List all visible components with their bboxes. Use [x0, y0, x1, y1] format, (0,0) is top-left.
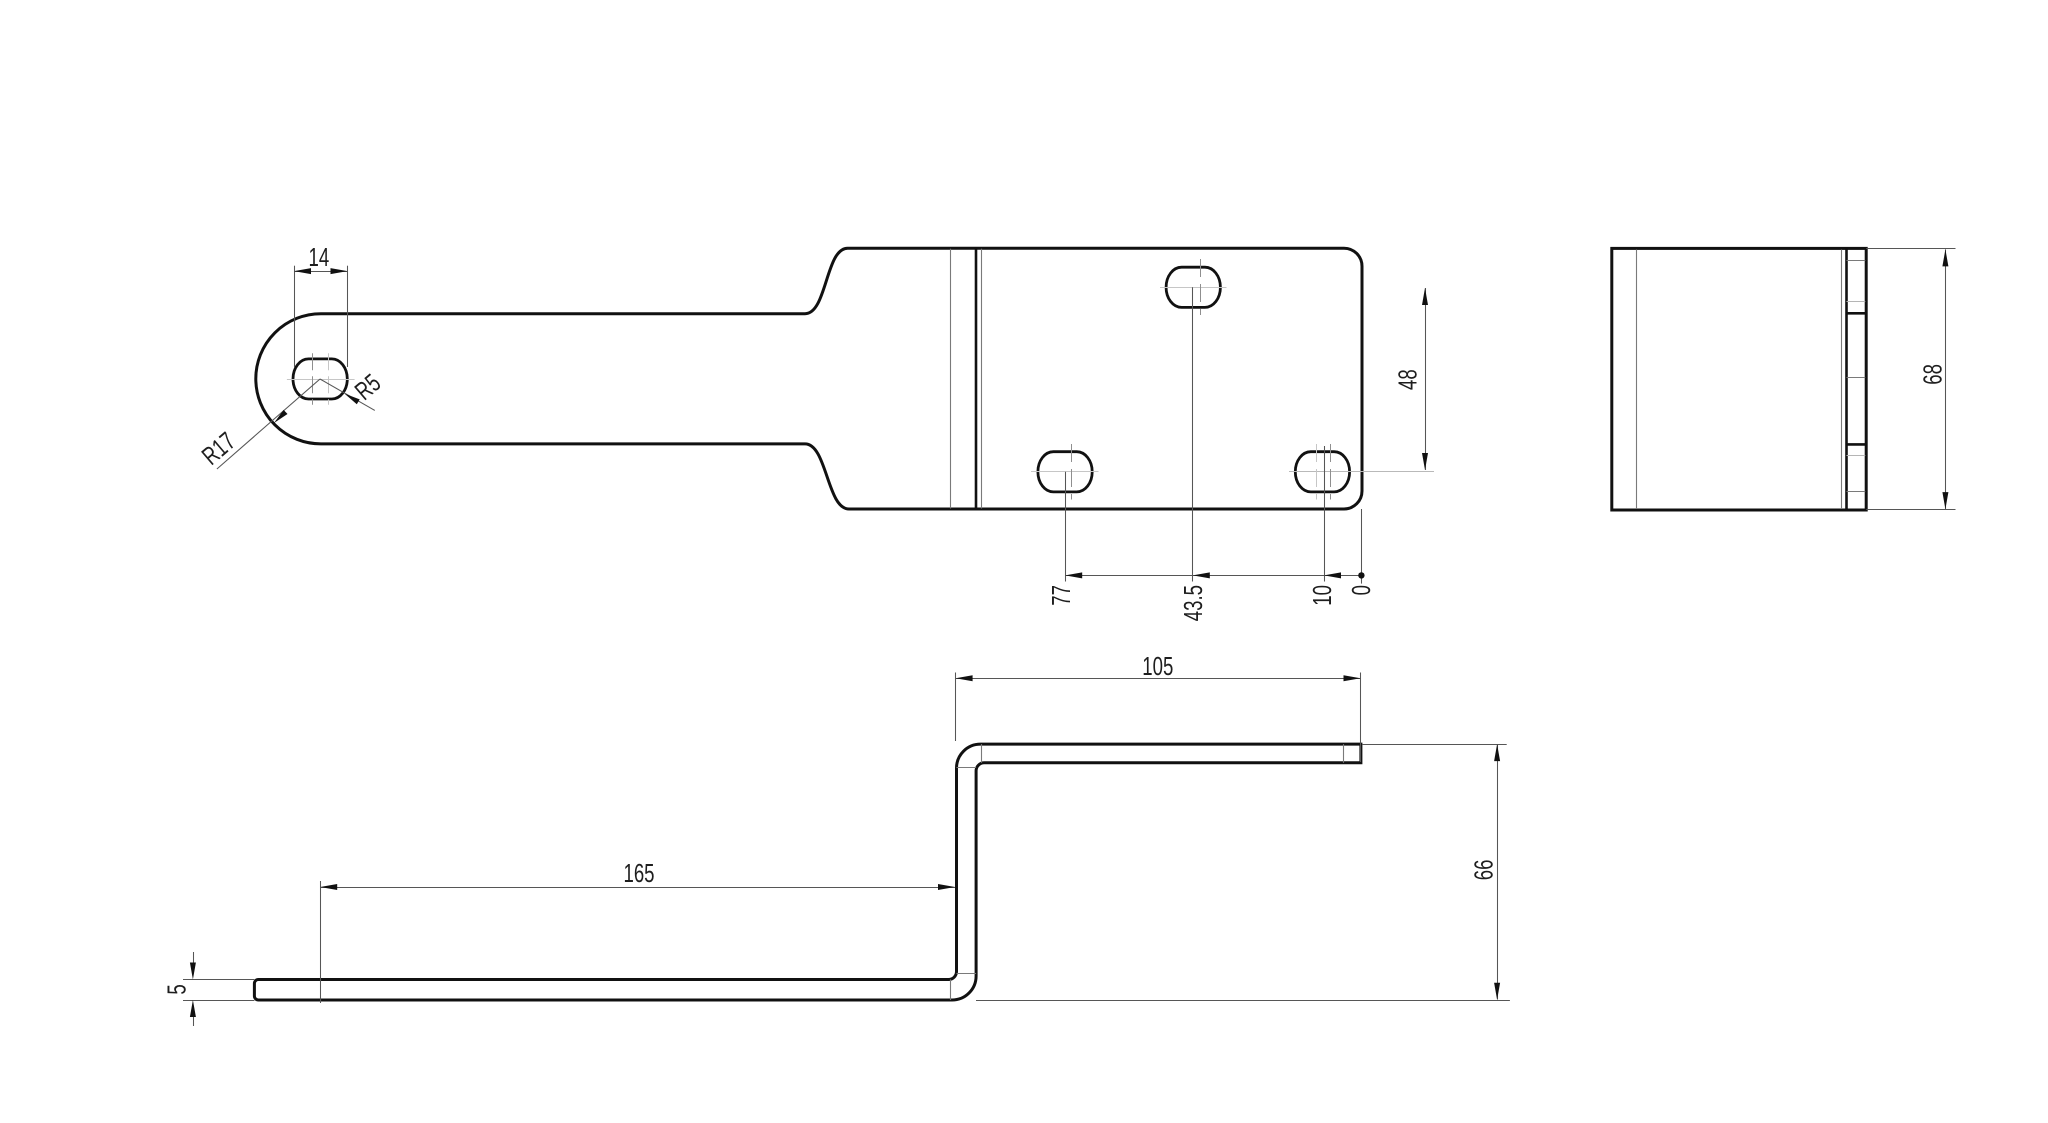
- svg-text:66: 66: [1469, 860, 1498, 881]
- svg-text:165: 165: [623, 859, 654, 888]
- svg-text:0: 0: [1347, 585, 1376, 595]
- svg-text:10: 10: [1308, 585, 1337, 606]
- svg-text:5: 5: [163, 984, 192, 994]
- svg-text:68: 68: [1919, 364, 1948, 385]
- svg-text:77: 77: [1047, 585, 1076, 606]
- svg-text:48: 48: [1394, 369, 1423, 390]
- svg-text:43.5: 43.5: [1179, 585, 1208, 621]
- svg-text:105: 105: [1142, 652, 1173, 681]
- svg-text:14: 14: [309, 243, 330, 272]
